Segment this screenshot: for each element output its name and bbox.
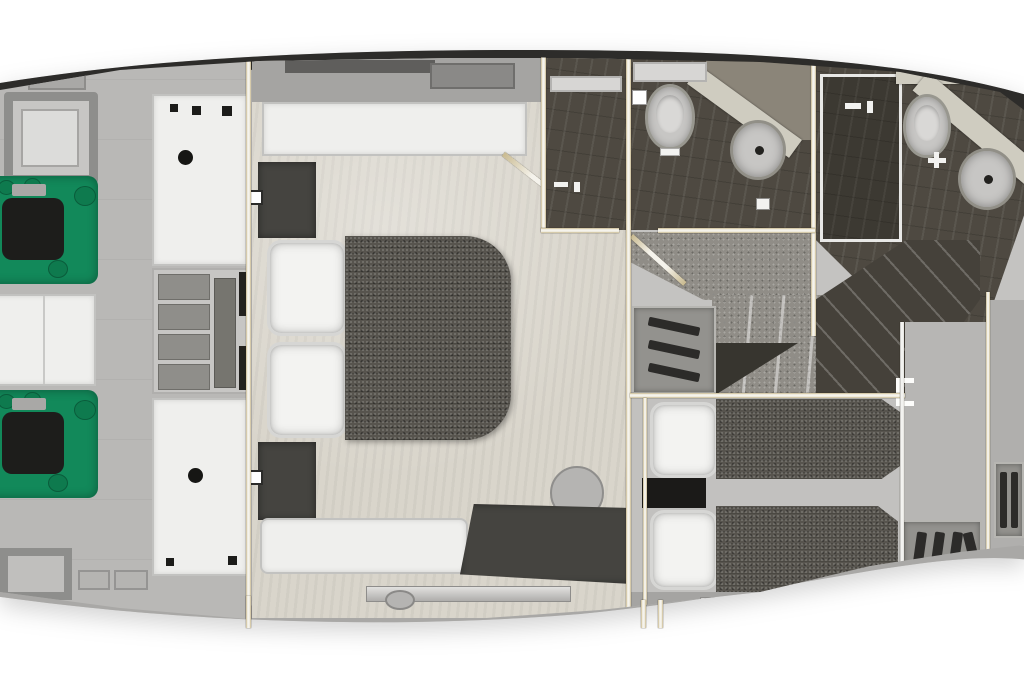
latch	[228, 556, 237, 565]
engine-block	[2, 412, 64, 474]
cabinet-box	[430, 63, 515, 89]
louvered-locker-bow	[994, 462, 1024, 538]
hatch-inner	[21, 109, 79, 167]
toilet-tank	[632, 90, 647, 105]
window-slot	[285, 60, 435, 73]
shower-fitting	[574, 182, 580, 192]
shelf-cell	[158, 304, 210, 330]
engine-detail	[12, 184, 46, 196]
sink-forward	[958, 148, 1016, 210]
bulkhead-stub-mid-2	[658, 600, 663, 628]
wardrobe-top	[258, 162, 316, 238]
door-stop	[756, 198, 770, 210]
wall-bathroom-south-right	[658, 228, 815, 233]
bulkhead-forward	[811, 54, 816, 336]
bench-seat	[260, 518, 468, 574]
tall-cabinet-bottom	[152, 398, 248, 576]
wall-bathroom-south-left	[541, 228, 619, 233]
cabinet-divider	[43, 296, 45, 384]
shelf-unit	[152, 268, 248, 394]
wall-shower-left	[541, 54, 546, 232]
guest-pillow-2	[650, 510, 718, 590]
deck-vent	[114, 570, 148, 590]
tall-cabinet-top	[152, 94, 248, 266]
shelf-dark-column	[214, 278, 236, 388]
door-handle-bracket	[896, 378, 914, 406]
deck-hatch-bottom	[0, 548, 72, 600]
access-hole	[178, 150, 193, 165]
yacht-floor-plan	[0, 0, 1024, 680]
latch	[170, 104, 178, 112]
credenza	[262, 102, 527, 156]
lobby-carpet	[631, 232, 813, 300]
under-stair-void	[712, 343, 798, 397]
wall-guest-north	[630, 393, 905, 398]
wall-guest-west-tan	[643, 398, 647, 618]
toilet-master	[645, 84, 695, 150]
shower-handle	[845, 103, 861, 109]
bulkhead-stub-aft	[246, 596, 251, 628]
engine-block	[2, 198, 64, 260]
shower-handle	[867, 101, 873, 113]
latch	[166, 558, 174, 566]
engine-starboard	[0, 390, 98, 498]
wardrobe-bottom	[258, 442, 316, 520]
guest-pillow-1	[650, 402, 718, 478]
nightstand	[642, 478, 706, 508]
master-top-sideboard	[252, 58, 545, 102]
engine-detail	[12, 398, 46, 410]
shelf-cell	[158, 274, 210, 300]
toilet-forward	[903, 94, 951, 158]
louvered-cabinet-lobby	[632, 306, 716, 394]
deck-hatch-top	[4, 92, 98, 184]
shelf-cell	[158, 364, 210, 390]
engine-port	[0, 176, 98, 284]
toilet-base	[660, 148, 680, 156]
storage-cabinet-mid	[0, 294, 96, 386]
forward-shower	[820, 74, 902, 242]
shelf-cell	[158, 334, 210, 360]
floor-fitting	[385, 590, 415, 610]
towel-hook	[934, 152, 939, 168]
sink-master	[730, 120, 786, 180]
access-hole	[188, 468, 203, 483]
wc-shelf	[633, 62, 707, 82]
master-pillow-2	[267, 342, 347, 438]
master-pillow-1	[267, 240, 347, 336]
guest-bed-1	[716, 399, 902, 479]
shower-shelf	[550, 76, 622, 92]
bulkhead-stub-mid-1	[641, 600, 646, 628]
deck-vent	[78, 570, 110, 590]
shower-fitting	[554, 182, 568, 187]
vanity-desk	[460, 504, 632, 584]
latch	[222, 106, 232, 116]
master-bed-mattress	[345, 236, 511, 440]
bulkhead-aft	[246, 56, 251, 622]
latch	[192, 106, 201, 115]
bulkhead-mid	[626, 54, 631, 620]
